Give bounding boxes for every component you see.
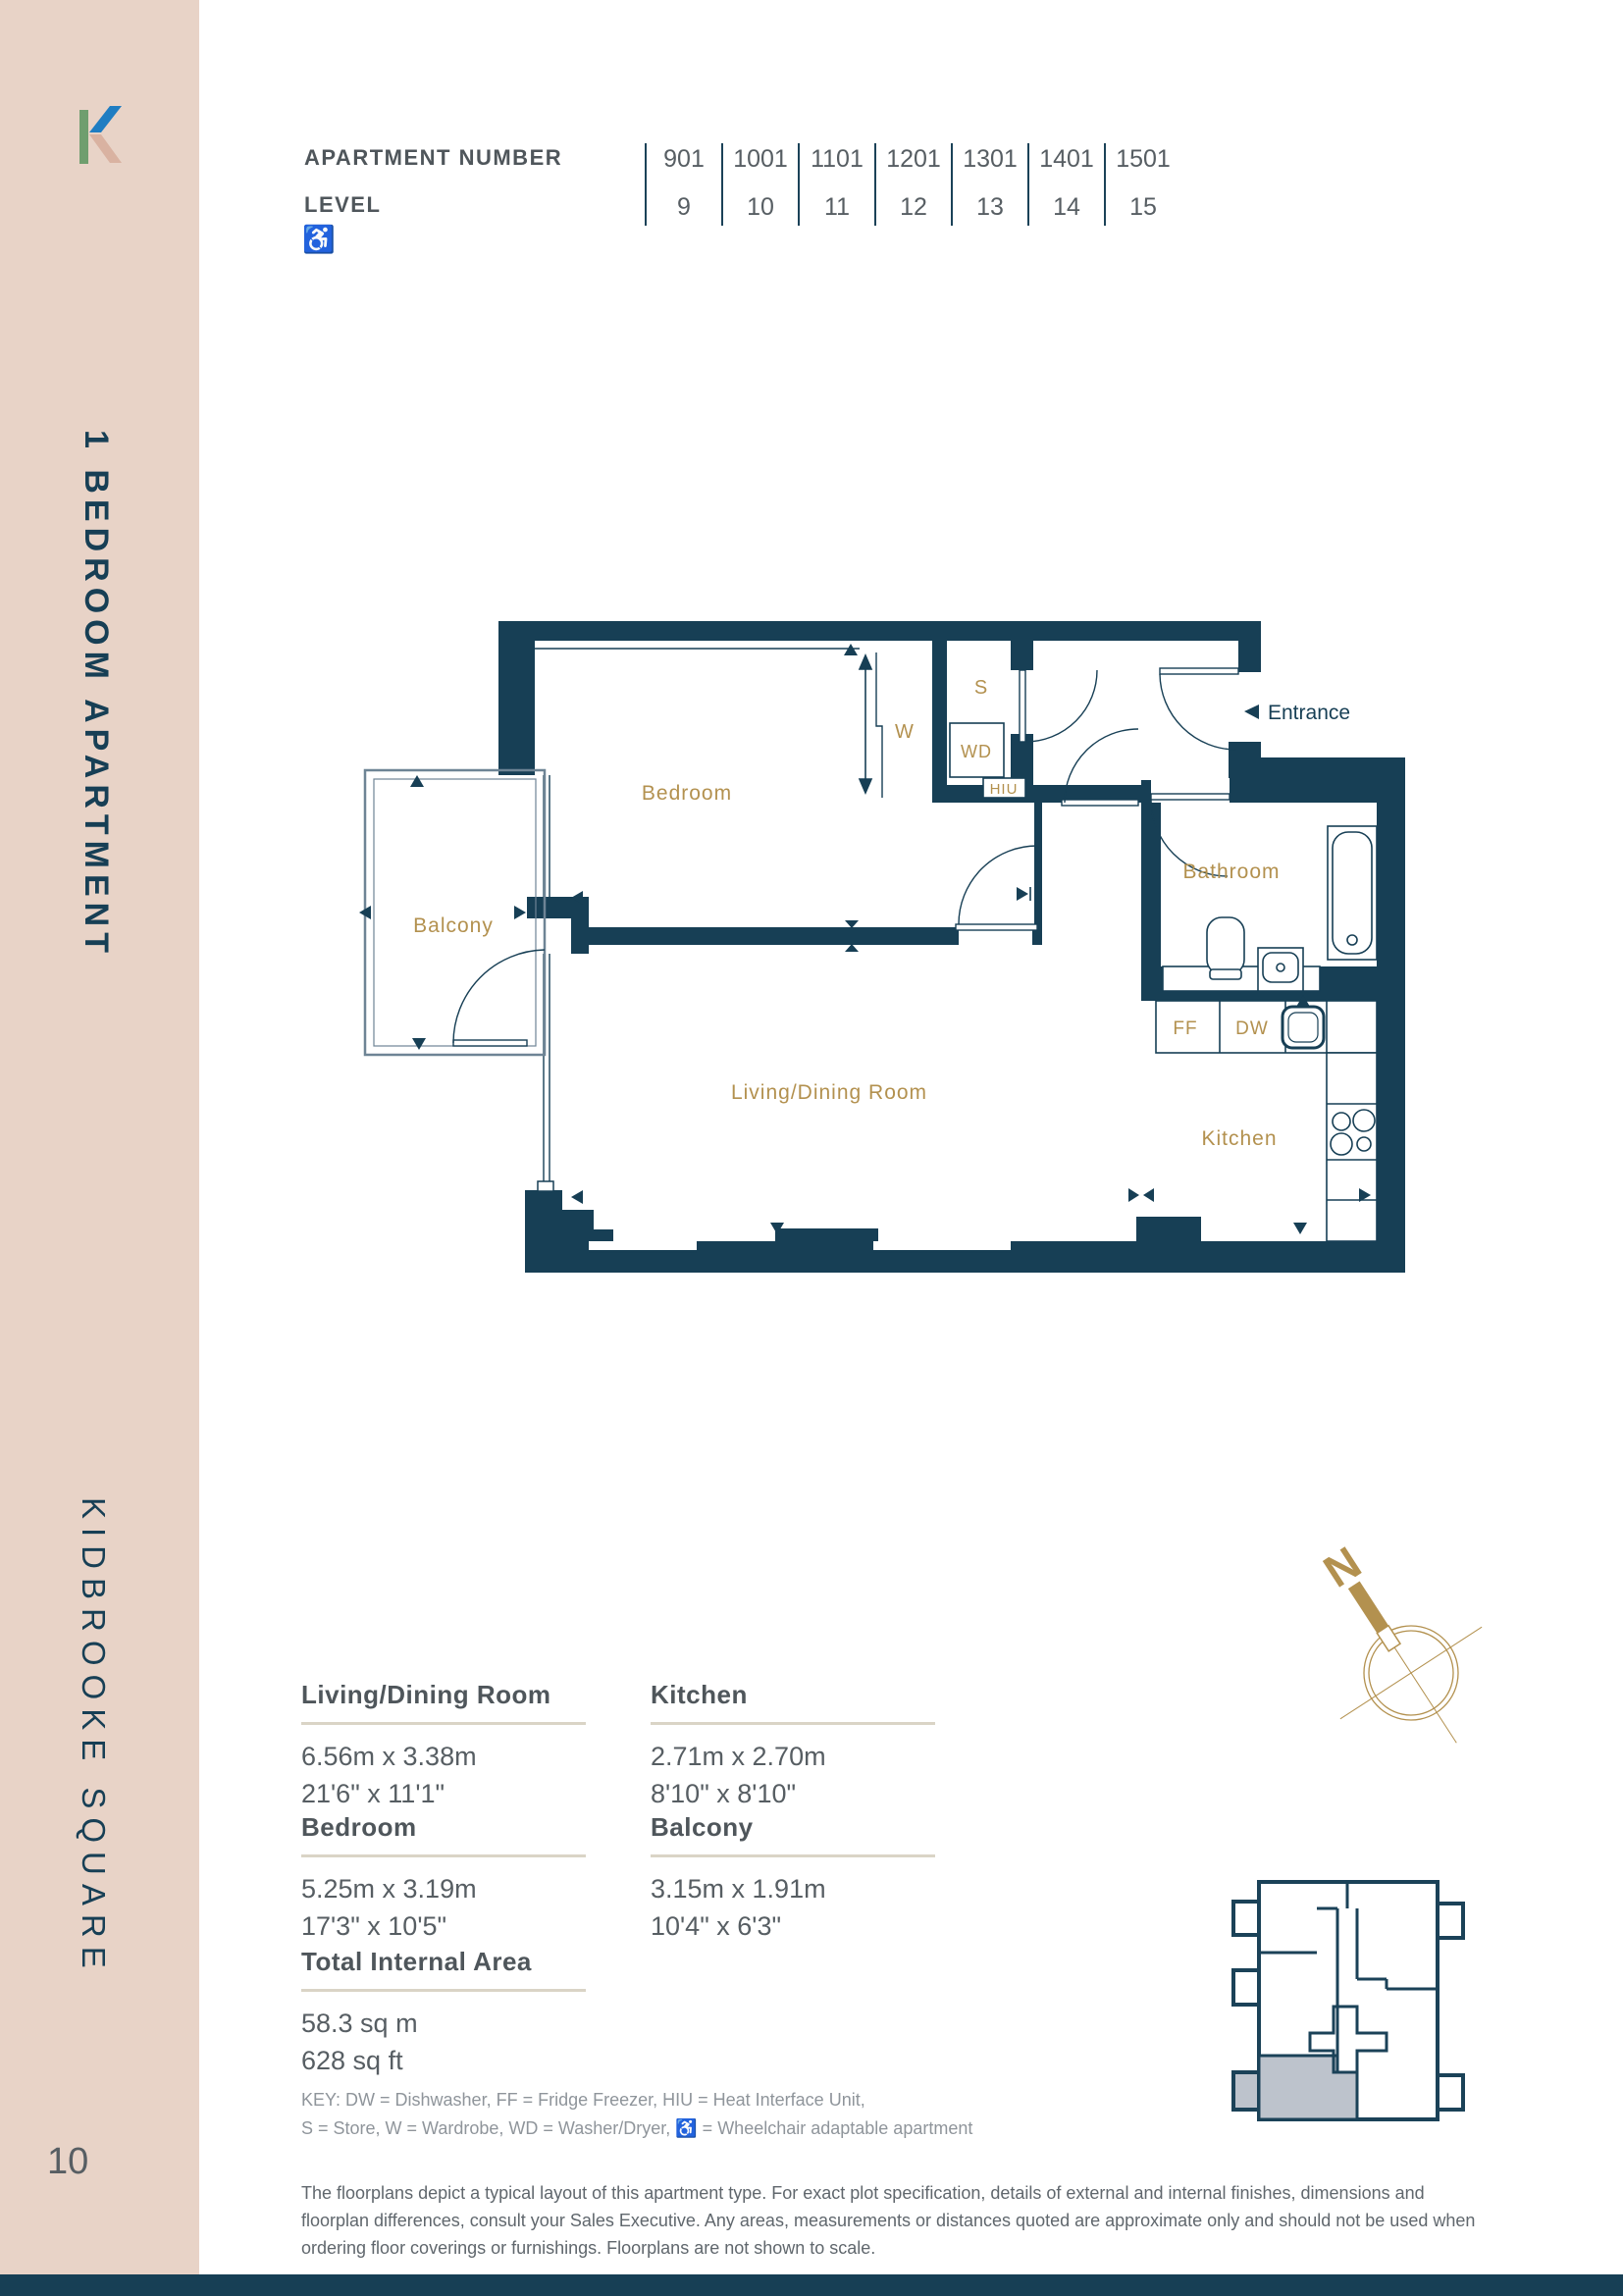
divider: [651, 1722, 935, 1725]
fridge-freezer-label: FF: [1173, 1018, 1197, 1039]
apartment-number: 1501: [1106, 143, 1180, 174]
total-area-block: Total Internal Area 58.3 sq m 628 sq ft: [301, 1947, 596, 2080]
level-number: 14: [1029, 193, 1104, 226]
dimension-metric: 6.56m x 3.38m: [301, 1739, 596, 1776]
dimension-imperial: 10'4" x 6'3": [651, 1908, 945, 1946]
dimension-imperial: 8'10" x 8'10": [651, 1776, 945, 1813]
bathroom-label: Bathroom: [1182, 861, 1280, 883]
divider: [301, 1989, 586, 1992]
living-dining-label: Living/Dining Room: [731, 1081, 927, 1104]
brand-k-logo-icon: [77, 102, 135, 171]
divider: [301, 1854, 586, 1857]
floorplan-drawing: Entrance Bedroom Balcony Living/Dining R…: [343, 589, 1423, 1295]
wheelchair-icon: ♿: [302, 224, 336, 255]
bottom-bar: [0, 2274, 1623, 2296]
dimension-imperial: 17'3" x 10'5": [301, 1908, 596, 1946]
dimension-room-name: Kitchen: [651, 1680, 945, 1710]
apartment-number: 1001: [723, 143, 798, 174]
dimension-block-bedroom: Bedroom 5.25m x 3.19m 17'3" x 10'5": [301, 1812, 596, 1946]
key-legend: KEY: DW = Dishwasher, FF = Fridge Freeze…: [301, 2086, 972, 2143]
dimension-metric: 2.71m x 2.70m: [651, 1739, 945, 1776]
kitchen-label: Kitchen: [1201, 1127, 1277, 1150]
dimension-block-living: Living/Dining Room 6.56m x 3.38m 21'6" x…: [301, 1680, 596, 1813]
level-number: 9: [647, 193, 721, 226]
disclaimer-line: floorplan differences, consult your Sale…: [301, 2208, 1479, 2235]
table-column: 1101 11: [798, 143, 874, 226]
level-label: LEVEL: [304, 192, 381, 218]
level-number: 10: [723, 193, 798, 226]
dimension-room-name: Bedroom: [301, 1812, 596, 1843]
building-locator-plan: [1222, 1864, 1477, 2129]
entrance-arrow-icon: [1244, 704, 1259, 719]
level-number: 12: [876, 193, 951, 226]
table-column: 1001 10: [721, 143, 798, 226]
level-number: 13: [953, 193, 1027, 226]
washer-dryer-label: WD: [961, 742, 992, 761]
apartment-number-label: APARTMENT NUMBER: [304, 145, 562, 171]
dimension-block-balcony: Balcony 3.15m x 1.91m 10'4" x 6'3": [651, 1812, 945, 1946]
dishwasher-label: DW: [1235, 1018, 1269, 1039]
table-column: 1301 13: [951, 143, 1027, 226]
table-column: 1401 14: [1027, 143, 1104, 226]
page-number: 10: [47, 2141, 88, 2183]
table-column: 901 9: [645, 143, 721, 226]
level-number: 11: [800, 193, 874, 226]
disclaimer-line: The floorplans depict a typical layout o…: [301, 2180, 1479, 2208]
development-name-vertical: KIDBROOKE SQUARE: [75, 1497, 112, 1977]
disclaimer-line: ordering floor coverings or furnishings.…: [301, 2235, 1479, 2263]
dimension-metric: 5.25m x 3.19m: [301, 1871, 596, 1908]
total-area-label: Total Internal Area: [301, 1947, 596, 1977]
bedroom-label: Bedroom: [642, 782, 732, 805]
apartment-number: 1101: [800, 143, 874, 174]
hiu-label: HIU: [990, 781, 1019, 798]
apartment-number: 901: [647, 143, 721, 174]
total-area-imperial: 628 sq ft: [301, 2043, 596, 2080]
dimension-block-kitchen: Kitchen 2.71m x 2.70m 8'10" x 8'10": [651, 1680, 945, 1813]
disclaimer-text: The floorplans depict a typical layout o…: [301, 2180, 1479, 2263]
wardrobe-label: W: [895, 721, 915, 743]
key-line: S = Store, W = Wardrobe, WD = Washer/Dry…: [301, 2114, 972, 2143]
key-line: KEY: DW = Dishwasher, FF = Fridge Freeze…: [301, 2086, 972, 2114]
apartment-number: 1401: [1029, 143, 1104, 174]
entrance-label: Entrance: [1268, 702, 1350, 724]
store-label: S: [974, 677, 988, 699]
table-column: 1201 12: [874, 143, 951, 226]
dimension-room-name: Balcony: [651, 1812, 945, 1843]
apartment-number: 1301: [953, 143, 1027, 174]
level-number: 15: [1106, 193, 1180, 226]
divider: [301, 1722, 586, 1725]
table-column: 1501 15: [1104, 143, 1180, 226]
compass-icon: N: [1305, 1545, 1521, 1761]
balcony-label: Balcony: [413, 914, 494, 937]
dimension-room-name: Living/Dining Room: [301, 1680, 596, 1710]
dimension-imperial: 21'6" x 11'1": [301, 1776, 596, 1813]
apartment-type-vertical-title: 1 BEDROOM APARTMENT: [77, 430, 115, 959]
locator-highlighted-unit: [1259, 2056, 1357, 2119]
divider: [651, 1854, 935, 1857]
locator-highlighted-balcony: [1233, 2072, 1259, 2110]
apartment-number: 1201: [876, 143, 951, 174]
total-area-metric: 58.3 sq m: [301, 2006, 596, 2043]
apartment-level-table: 901 9 1001 10 1101 11 1201 12 1301 13 14…: [645, 143, 1180, 226]
dimension-metric: 3.15m x 1.91m: [651, 1871, 945, 1908]
